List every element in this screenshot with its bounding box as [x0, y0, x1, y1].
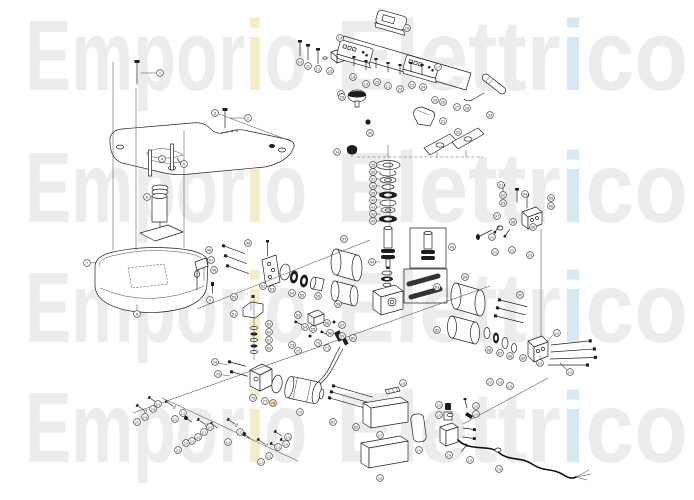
svg-text:32: 32 [456, 129, 461, 134]
svg-text:26: 26 [441, 99, 446, 104]
part-callout: 5 [181, 161, 188, 168]
leader-line [560, 363, 567, 370]
part-callout: 137 [487, 379, 494, 386]
svg-text:24: 24 [421, 84, 426, 89]
part-callout: 57 [341, 236, 348, 243]
part-callout: 87 [497, 350, 504, 357]
svg-text:30: 30 [368, 130, 373, 135]
svg-text:80: 80 [351, 335, 356, 340]
svg-text:96: 96 [549, 203, 554, 208]
svg-text:126: 126 [401, 381, 406, 385]
part-callout: 51 [231, 311, 238, 318]
part-callout: 65 [310, 326, 317, 333]
part-callout: 10 [297, 59, 304, 66]
part-callout: 49 [245, 240, 252, 247]
svg-text:17: 17 [436, 64, 441, 69]
svg-text:109: 109 [151, 407, 156, 411]
watermark-word-emporio: Emporio [25, 0, 307, 112]
svg-text:114: 114 [184, 441, 189, 445]
svg-text:22: 22 [398, 86, 403, 91]
svg-text:76: 76 [251, 395, 256, 400]
part-callout: 104 [554, 330, 561, 337]
part-callout: 22 [397, 86, 404, 93]
part-callout: 98 [510, 219, 517, 226]
svg-text:124: 124 [284, 442, 289, 446]
part-callout: 8 [134, 311, 141, 318]
part-callout: 73 [289, 342, 296, 349]
svg-text:54: 54 [290, 290, 295, 295]
svg-text:36: 36 [371, 169, 376, 174]
svg-text:67: 67 [340, 322, 345, 327]
part-callout: 6 [144, 194, 151, 201]
top-cover-plate [110, 123, 294, 175]
part-callout: 117 [201, 429, 208, 436]
svg-text:65: 65 [311, 326, 316, 331]
svg-text:88: 88 [508, 353, 513, 358]
part-callout: 37 [370, 176, 377, 183]
part-callout: 41 [370, 204, 377, 211]
svg-text:50: 50 [232, 294, 237, 299]
part-callout: 34 [334, 149, 341, 156]
part-callout: 100 [489, 234, 496, 241]
svg-text:20: 20 [375, 79, 380, 84]
svg-text:35: 35 [371, 162, 376, 167]
part-callout: 60 [266, 329, 273, 336]
svg-text:119: 119 [226, 440, 231, 444]
part-callout: 48 [211, 267, 218, 274]
svg-text:39: 39 [371, 190, 376, 195]
part-callout: 12 [315, 66, 322, 73]
svg-text:99: 99 [531, 224, 536, 229]
svg-text:85: 85 [435, 327, 440, 332]
part-callout: 19 [363, 81, 370, 88]
part-callout: 56 [315, 293, 322, 300]
part-callout: 61 [266, 337, 273, 344]
part-callout: 106 [567, 369, 574, 376]
part-callout: 121 [258, 459, 265, 466]
part-callout: 25 [432, 97, 439, 104]
part-callout: 14 [337, 35, 344, 42]
part-callout: 9 [207, 297, 214, 304]
part-callout: 64 [302, 324, 309, 331]
part-callout: 63 [295, 312, 302, 319]
part-callout: 18 [350, 74, 357, 81]
part-callout: 55 [299, 292, 306, 299]
part-callout: 28 [464, 105, 471, 112]
svg-text:137: 137 [488, 380, 493, 384]
part-callout: 62 [266, 345, 273, 352]
part-callout: 108 [142, 414, 149, 421]
svg-text:133: 133 [474, 412, 479, 416]
part-callout: 21 [385, 83, 392, 90]
svg-text:105: 105 [538, 361, 543, 365]
svg-text:56: 56 [316, 293, 321, 298]
part-callout: 35 [370, 162, 377, 169]
svg-text:33: 33 [488, 112, 493, 117]
svg-text:102: 102 [510, 248, 515, 252]
part-callout: 125 [285, 434, 292, 441]
svg-text:118: 118 [208, 425, 213, 429]
part-callout: 88 [507, 353, 514, 360]
svg-text:60: 60 [267, 329, 272, 334]
part-callout: 80 [350, 335, 357, 342]
svg-text:81: 81 [331, 419, 336, 424]
svg-text:18: 18 [351, 74, 356, 79]
svg-text:121: 121 [259, 460, 264, 464]
part-callout: 120 [237, 429, 244, 436]
part-callout: 54 [289, 290, 296, 297]
part-callout: 128 [377, 475, 384, 482]
svg-text:127: 127 [378, 433, 383, 437]
part-callout: 16 [404, 25, 411, 32]
part-callout: 130 [436, 402, 443, 409]
svg-text:117: 117 [202, 430, 207, 434]
part-callout: 4 [159, 156, 166, 163]
svg-text:16: 16 [405, 25, 410, 30]
svg-text:125: 125 [286, 435, 291, 439]
part-callout: 92 [500, 192, 507, 199]
svg-text:128: 128 [378, 476, 383, 480]
svg-text:132: 132 [474, 404, 479, 408]
part-callout: 67 [339, 322, 346, 329]
part-callout: 78 [270, 400, 277, 407]
part-callout: 118 [207, 424, 214, 431]
svg-text:25: 25 [433, 97, 438, 102]
svg-text:97: 97 [495, 213, 500, 218]
svg-text:51: 51 [232, 311, 237, 316]
part-callout: 31 [440, 118, 447, 125]
part-callout: 72 [295, 348, 302, 355]
svg-text:59: 59 [267, 321, 272, 326]
part-callout: 46 [206, 247, 213, 254]
svg-text:112: 112 [181, 411, 186, 415]
svg-text:41: 41 [371, 204, 376, 209]
part-callout: 59 [266, 321, 273, 328]
part-callout: 93 [500, 200, 507, 207]
svg-text:68: 68 [328, 330, 333, 335]
part-callout: 105 [537, 360, 544, 367]
part-callout: 53 [269, 286, 276, 293]
part-callout: 32 [455, 129, 462, 136]
svg-text:44: 44 [370, 259, 375, 264]
svg-text:92: 92 [501, 192, 506, 197]
watermarked-parts-diagram: Emporio Elettrico EmporioElettricoEmpori… [0, 0, 694, 500]
part-callout: 76 [250, 395, 257, 402]
svg-text:103: 103 [528, 253, 533, 257]
svg-text:123: 123 [276, 445, 281, 449]
svg-text:55: 55 [300, 292, 305, 297]
part-callout: 68 [327, 330, 334, 337]
svg-text:87: 87 [498, 350, 503, 355]
svg-text:82: 82 [354, 424, 359, 429]
part-callout: 107 [134, 419, 141, 426]
svg-text:95: 95 [549, 195, 554, 200]
part-callout: 27 [454, 104, 461, 111]
svg-text:69: 69 [340, 333, 345, 338]
part-callout: 26 [440, 99, 447, 106]
svg-text:43: 43 [371, 218, 376, 223]
water-tank [95, 248, 208, 313]
part-callout: 74 [212, 359, 219, 366]
svg-text:52: 52 [261, 283, 266, 288]
svg-text:98: 98 [511, 219, 516, 224]
hex-nut [365, 119, 370, 124]
part-callout: 123 [275, 444, 282, 451]
svg-text:63: 63 [296, 312, 301, 317]
svg-text:89: 89 [521, 355, 526, 360]
svg-text:27: 27 [455, 104, 460, 109]
part-callout: 133 [473, 411, 480, 418]
svg-text:45: 45 [450, 244, 455, 249]
svg-text:131: 131 [437, 413, 442, 417]
part-callout: 135 [467, 457, 474, 464]
part-callout: 47 [208, 257, 215, 264]
part-callout: 103 [527, 252, 534, 259]
part-callout: 138 [497, 379, 504, 386]
part-callout: 58 [335, 301, 342, 308]
part-callout: 96 [548, 203, 555, 210]
svg-text:104: 104 [555, 331, 560, 335]
part-callout: 139 [507, 383, 514, 390]
part-callout: 95 [548, 195, 555, 202]
svg-text:21: 21 [386, 83, 391, 88]
part-callout: 97 [494, 213, 501, 220]
part-callout: 45 [449, 244, 456, 251]
svg-text:90: 90 [518, 292, 523, 297]
svg-text:74: 74 [213, 359, 218, 364]
part-callout: 79 [297, 409, 304, 416]
part-callout: 89 [520, 355, 527, 362]
svg-text:66: 66 [325, 320, 330, 325]
svg-text:86: 86 [487, 347, 492, 352]
svg-text:111: 111 [173, 417, 178, 421]
part-callout: 81 [330, 419, 337, 426]
part-callout: 84 [462, 274, 469, 281]
svg-text:94: 94 [523, 191, 528, 196]
svg-text:135: 135 [468, 458, 473, 462]
part-callout: 75 [215, 371, 222, 378]
svg-text:62: 62 [267, 345, 272, 350]
part-callout: 116 [195, 434, 202, 441]
boiler-cap [347, 146, 357, 155]
part-callout: 29 [339, 94, 346, 101]
svg-text:120: 120 [238, 430, 243, 434]
part-callout: 33 [487, 112, 494, 119]
svg-text:101: 101 [493, 250, 498, 254]
svg-text:116: 116 [196, 435, 201, 439]
svg-text:53: 53 [270, 286, 275, 291]
part-callout: 129 [416, 447, 423, 454]
part-callout: 136 [496, 466, 503, 473]
svg-text:93: 93 [501, 200, 506, 205]
svg-text:130: 130 [437, 403, 442, 407]
part-callout: 115 [189, 438, 196, 445]
side-duct-upper [363, 397, 408, 428]
svg-text:40: 40 [371, 197, 376, 202]
svg-text:113: 113 [176, 448, 181, 452]
part-callout: 42 [370, 211, 377, 218]
part-callout: 69 [339, 333, 346, 340]
svg-text:106: 106 [568, 370, 573, 374]
part-callout: 71 [324, 345, 331, 352]
part-callout: 91 [498, 182, 505, 189]
part-callout: 86 [486, 347, 493, 354]
part-callout: 111 [172, 416, 179, 423]
svg-text:14: 14 [338, 35, 343, 40]
part-callout: 83 [434, 284, 441, 291]
part-callout: 70 [315, 340, 322, 347]
part-callout: 2 [245, 115, 252, 122]
svg-text:70: 70 [316, 340, 321, 345]
svg-text:28: 28 [465, 105, 470, 110]
svg-text:61: 61 [267, 337, 272, 342]
part-callout: 110 [155, 401, 162, 408]
part-callout: 102 [509, 247, 516, 254]
part-callout: 77 [262, 398, 269, 405]
part-callout: 99 [530, 224, 537, 231]
svg-text:108: 108 [143, 415, 148, 419]
part-callout: 20 [374, 79, 381, 86]
svg-text:134: 134 [447, 453, 452, 457]
svg-text:75: 75 [216, 371, 221, 376]
svg-text:107: 107 [135, 420, 140, 424]
svg-text:73: 73 [290, 342, 295, 347]
part-callout: 94 [522, 191, 529, 198]
part-callout: 39 [370, 190, 377, 197]
svg-text:136: 136 [497, 467, 502, 471]
part-callout: 124 [283, 441, 290, 448]
svg-text:58: 58 [336, 301, 341, 306]
svg-text:138: 138 [498, 380, 503, 384]
part-callout: 23 [409, 82, 416, 89]
svg-text:71: 71 [325, 345, 330, 350]
part-callout: 113 [175, 447, 182, 454]
part-callout: 90 [517, 292, 524, 299]
svg-text:38: 38 [371, 183, 376, 188]
svg-text:47: 47 [209, 257, 214, 262]
svg-text:42: 42 [371, 211, 376, 216]
watermark: EmporioElettricoEmporioElettricoEmporioE… [25, 0, 688, 484]
svg-text:91: 91 [499, 182, 504, 187]
part-callout: 17 [435, 64, 442, 71]
part-callout: 127 [377, 432, 384, 439]
svg-text:110: 110 [156, 402, 161, 406]
part-callout: 132 [473, 403, 480, 410]
part-callout: 1 [157, 70, 164, 77]
svg-text:10: 10 [298, 59, 303, 64]
svg-text:13: 13 [328, 68, 333, 73]
group-head-block [373, 285, 403, 315]
svg-text:115: 115 [190, 439, 195, 443]
part-callout: 52 [260, 283, 267, 290]
svg-text:139: 139 [508, 384, 513, 388]
svg-text:78: 78 [271, 400, 276, 405]
svg-text:46: 46 [207, 247, 212, 252]
part-callout: 85 [434, 327, 441, 334]
svg-text:72: 72 [296, 348, 301, 353]
part-callout: 40 [370, 197, 377, 204]
svg-text:34: 34 [335, 149, 340, 154]
svg-text:122: 122 [267, 454, 272, 458]
part-callout: 122 [266, 453, 273, 460]
part-callout: 126 [400, 380, 407, 387]
part-callout: 66 [324, 320, 331, 327]
part-callout: 112 [180, 410, 187, 417]
part-callout: 38 [370, 183, 377, 190]
part-callout: 44 [369, 259, 376, 266]
part-callout: 101 [492, 249, 499, 256]
piston-washers [381, 271, 393, 287]
svg-text:19: 19 [364, 81, 369, 86]
part-callout: 43 [370, 218, 377, 225]
svg-text:64: 64 [303, 324, 308, 329]
svg-text:77: 77 [263, 398, 268, 403]
part-callout: 134 [446, 452, 453, 459]
part-callout: 13 [327, 68, 334, 75]
part-callout: 119 [225, 439, 232, 446]
svg-text:57: 57 [342, 236, 347, 241]
part-callout: 24 [420, 84, 427, 91]
svg-text:48: 48 [212, 267, 217, 272]
part-callout: 36 [370, 169, 377, 176]
svg-text:100: 100 [490, 235, 495, 239]
svg-text:83: 83 [435, 284, 440, 289]
part-callout: 11 [305, 63, 312, 70]
part-callout: 131 [436, 412, 443, 419]
part-callout: 30 [367, 130, 374, 137]
part-callout: 3 [212, 110, 219, 117]
svg-text:79: 79 [298, 409, 303, 414]
svg-text:84: 84 [463, 274, 468, 279]
svg-text:129: 129 [417, 448, 422, 452]
part-callout: 82 [353, 424, 360, 431]
svg-text:12: 12 [316, 66, 321, 71]
part-callout: 7 [84, 260, 91, 267]
part-callout: 50 [231, 294, 238, 301]
svg-text:37: 37 [371, 176, 376, 181]
svg-text:29: 29 [340, 94, 345, 99]
svg-text:49: 49 [246, 240, 251, 245]
svg-text:23: 23 [410, 82, 415, 87]
cover-screw-right [223, 108, 228, 128]
svg-text:31: 31 [441, 118, 446, 123]
